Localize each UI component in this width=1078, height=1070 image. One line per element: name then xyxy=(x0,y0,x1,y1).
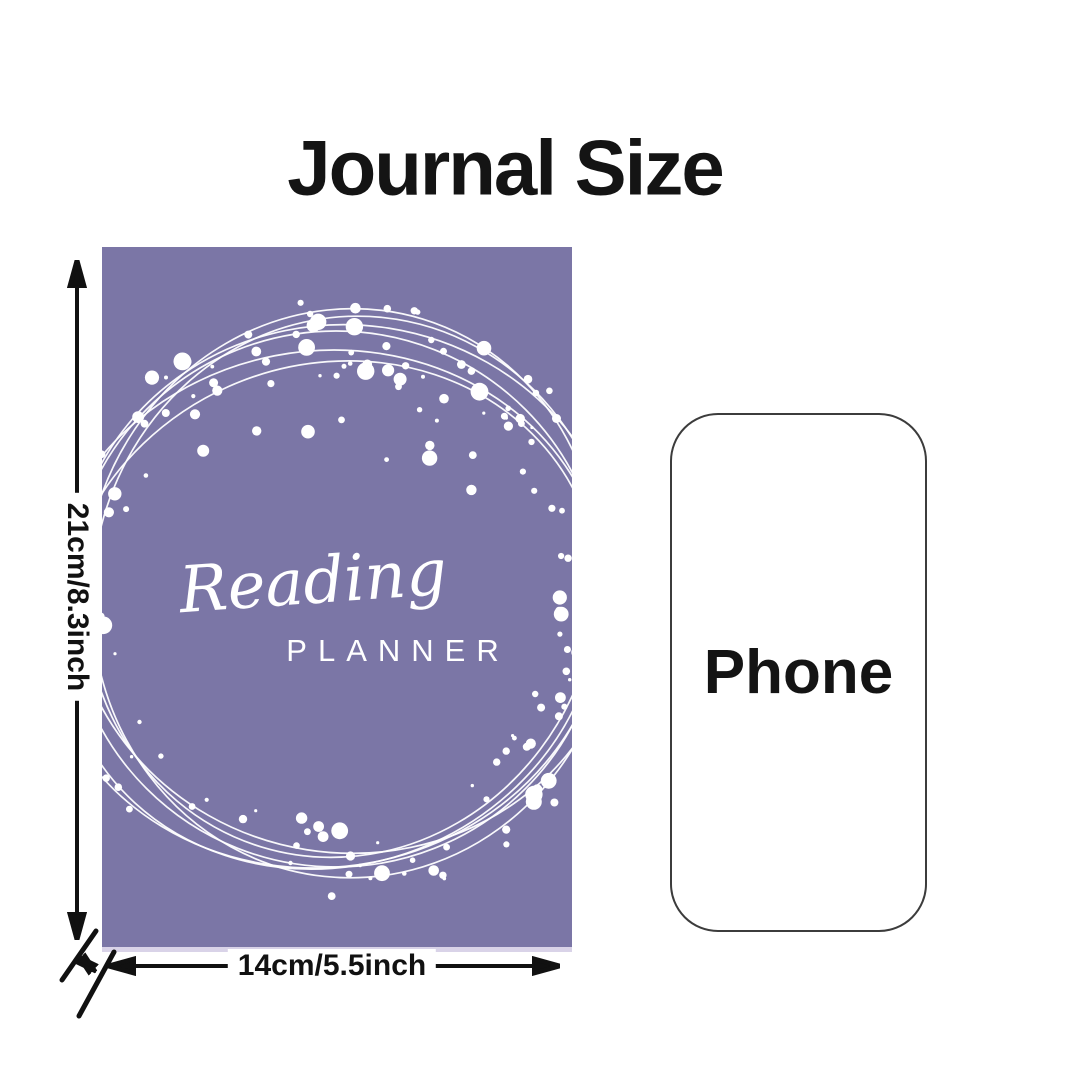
corner-diagonal-double-arrow xyxy=(79,957,95,971)
corner-break-slash-1 xyxy=(62,931,96,980)
phone-outline: Phone xyxy=(670,413,927,932)
height-dimension-label: 21cm/8.3inch xyxy=(60,493,94,701)
page-title: Journal Size xyxy=(287,123,722,214)
journal-cover: Reading PLANNER xyxy=(102,247,572,952)
journal-cover-subtitle: PLANNER xyxy=(286,633,509,669)
corner-break-slash-2 xyxy=(79,952,114,1016)
journal-size-comparison-graphic: Journal Size Reading PLANNER xyxy=(0,0,1078,1070)
phone-label: Phone xyxy=(704,637,893,708)
width-dimension-label: 14cm/5.5inch xyxy=(228,949,436,983)
